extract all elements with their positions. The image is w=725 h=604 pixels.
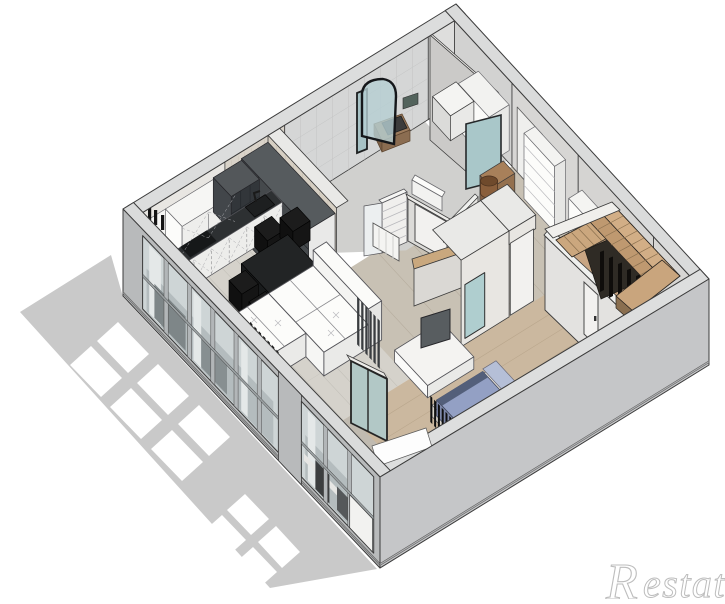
svg-text:estate: estate bbox=[643, 561, 725, 599]
svg-text:R: R bbox=[605, 554, 638, 599]
